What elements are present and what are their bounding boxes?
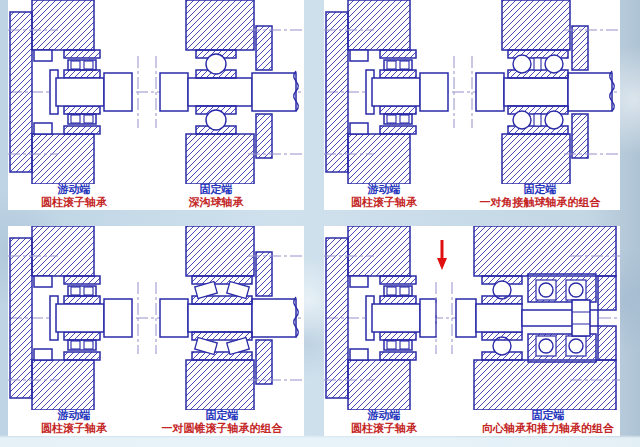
diagram-panel-top-right: 游动端 圆柱滚子轴承 固定端 一对角接触球轴承的组合 [324, 0, 620, 210]
fixed-end-bearing-type: 向心轴承和推力轴承的组合 [482, 422, 614, 435]
floating-end-title: 游动端 [41, 409, 107, 422]
fixed-end-bearing-type: 一对角接触球轴承的组合 [480, 196, 601, 209]
floating-end-title: 游动端 [351, 183, 417, 196]
floating-end-label: 游动端 圆柱滚子轴承 [41, 409, 107, 435]
floating-end-label: 游动端 圆柱滚子轴承 [351, 409, 417, 435]
floating-end-bearing-type: 圆柱滚子轴承 [41, 422, 107, 435]
slide-bearing-arrangements: 游动端 圆柱滚子轴承 固定端 深沟球轴承 游动端 圆柱滚子轴承 固定端 一对角接… [0, 0, 640, 447]
fixed-end-title: 固定端 [480, 183, 601, 196]
floating-end-label: 游动端 圆柱滚子轴承 [41, 183, 107, 209]
floating-end-label: 游动端 圆柱滚子轴承 [351, 183, 417, 209]
fixed-end-title: 固定端 [482, 409, 614, 422]
fixed-end-label: 固定端 一对圆锥滚子轴承的组合 [162, 409, 283, 435]
fixed-end-label: 固定端 一对角接触球轴承的组合 [480, 183, 601, 209]
diagram-panel-bottom-left: 游动端 圆柱滚子轴承 固定端 一对圆锥滚子轴承的组合 [8, 226, 304, 436]
fixed-end-label: 固定端 向心轴承和推力轴承的组合 [482, 409, 614, 435]
fixed-end-title: 固定端 [162, 409, 283, 422]
fixed-end-bearing-type: 一对圆锥滚子轴承的组合 [162, 422, 283, 435]
fixed-end-label: 固定端 深沟球轴承 [189, 183, 244, 209]
floating-end-title: 游动端 [351, 409, 417, 422]
floating-end-bearing-type: 圆柱滚子轴承 [351, 422, 417, 435]
bearing-assembly-drawing [324, 0, 620, 184]
bearing-assembly-drawing [8, 0, 304, 184]
fixed-end-bearing-type: 深沟球轴承 [189, 196, 244, 209]
floating-end-bearing-type: 圆柱滚子轴承 [351, 196, 417, 209]
bearing-assembly-drawing [324, 226, 620, 410]
bearing-assembly-drawing [8, 226, 304, 410]
fixed-end-title: 固定端 [189, 183, 244, 196]
diagram-panel-top-left: 游动端 圆柱滚子轴承 固定端 深沟球轴承 [8, 0, 304, 210]
floating-end-bearing-type: 圆柱滚子轴承 [41, 196, 107, 209]
floating-end-title: 游动端 [41, 183, 107, 196]
diagram-panel-bottom-right: 游动端 圆柱滚子轴承 固定端 向心轴承和推力轴承的组合 [324, 226, 620, 436]
